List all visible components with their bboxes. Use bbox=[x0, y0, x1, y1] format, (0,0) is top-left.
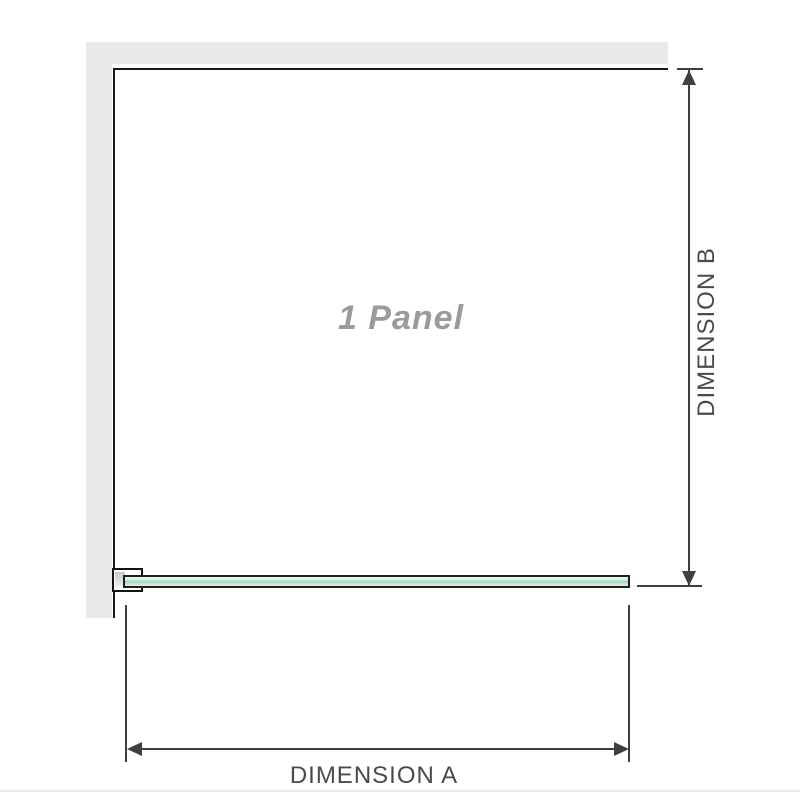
arrow-up-icon bbox=[682, 70, 696, 85]
dimension-b-line bbox=[688, 70, 690, 586]
panel-outline-left bbox=[113, 68, 115, 618]
arrow-down-icon bbox=[682, 571, 696, 586]
arrow-right-icon bbox=[614, 742, 629, 756]
dimension-a-line bbox=[133, 748, 623, 750]
footer-divider-line bbox=[0, 790, 800, 792]
panel-outline-top bbox=[113, 68, 668, 70]
diagram-canvas: 1 Panel DIMENSION B DIMENSION A bbox=[0, 0, 800, 800]
glass-panel-bar bbox=[123, 575, 630, 588]
dimension-a-extension-left bbox=[125, 605, 127, 762]
wall-top-strip bbox=[86, 42, 668, 64]
dimension-a-extension-right bbox=[628, 605, 630, 762]
dimension-a-label: DIMENSION A bbox=[224, 763, 524, 789]
dimension-b-label: DIMENSION B bbox=[694, 232, 720, 432]
wall-left-strip bbox=[86, 42, 112, 618]
arrow-left-icon bbox=[127, 742, 142, 756]
panel-count-label: 1 Panel bbox=[251, 301, 551, 341]
